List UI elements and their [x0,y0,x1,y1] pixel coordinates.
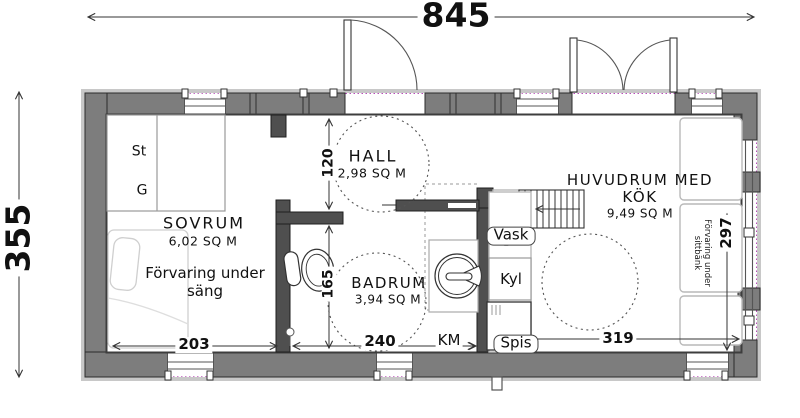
room-area-sovrum: 6,02 SQ M [169,234,238,247]
closet-label-g: G [137,184,148,199]
entry-door-swing [351,20,417,90]
double-door-right-swing [624,40,670,90]
double-door-left-leaf [570,38,577,92]
overall-height-dimension: 355 [2,200,37,277]
sovrum-storage-note-line2: säng [187,284,223,300]
entry-door-leaf [344,20,351,90]
bench-storage-note-line2: sittbänk [691,219,701,287]
room-area-hall: 2,98 SQ M [338,166,407,179]
sovrum-width-dimension: 203 [175,337,212,353]
sovrum-storage-note-line1: Förvaring under [145,266,265,282]
room-area-badrum: 3,94 SQ M [355,294,421,307]
overall-width-dimension: 845 [418,0,495,33]
stove-label: Spis [493,335,538,354]
fridge-label: Kyl [500,272,522,288]
drain-pipe [492,377,502,390]
closet-label-st: St [132,145,146,160]
double-door-right-leaf [670,38,677,92]
room-name-huvudrum-line1: HUVUDRUM MED [567,173,713,189]
room-name-hall: HALL [349,149,398,166]
sink-label: Vask [487,227,536,246]
bench-storage-note-line1: Förvaring under [701,219,711,287]
badrum-width-dimension: 240 [361,334,398,350]
hall-depth-dimension: 120 [322,145,337,180]
badrum-depth-dimension: 165 [322,266,337,301]
double-door-left-swing [577,40,623,90]
bench-storage-note: Förvaring under sittbänk [691,219,711,287]
kok-depth-dimension: 297 [719,214,735,251]
floor-plan: 845 355 HALL 2,98 SQ M HUVUDRUM MED KÖK … [0,0,800,418]
closet [107,115,225,211]
room-name-badrum: BADRUM [351,276,426,292]
room-name-huvudrum-line2: KÖK [622,190,657,206]
washing-machine-label: KM [436,333,463,349]
room-area-huvudrum: 9,49 SQ M [607,208,673,221]
floor-plan-linework [0,0,800,418]
kok-width-dimension: 319 [599,331,636,347]
room-name-sovrum: SOVRUM [163,216,245,233]
